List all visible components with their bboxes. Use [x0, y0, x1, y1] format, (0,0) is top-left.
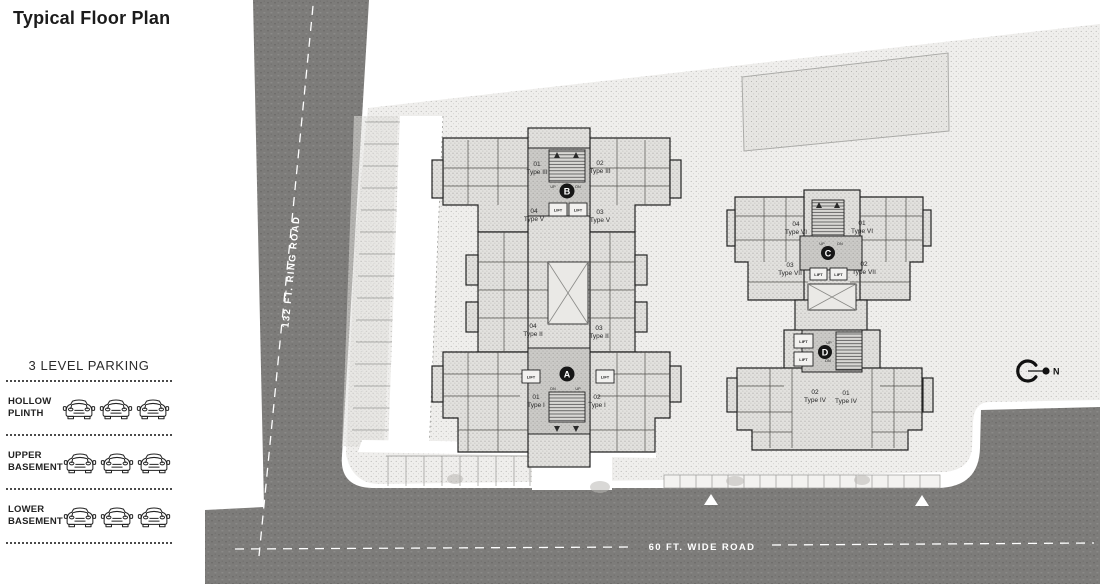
svg-text:Type I: Type I — [588, 402, 606, 409]
svg-text:Type I: Type I — [527, 402, 545, 409]
svg-text:B: B — [564, 187, 571, 197]
up-label: UP — [550, 185, 556, 189]
car-icons-row — [62, 397, 172, 420]
svg-text:03: 03 — [596, 209, 604, 216]
car-icon — [63, 451, 97, 474]
parking-legend: 3 LEVEL PARKING HOLLOW PLINTH UPPER BASE… — [6, 358, 172, 544]
svg-text:Type II: Type II — [589, 333, 609, 340]
svg-text:D: D — [822, 348, 829, 358]
wide-road-label: 60 FT. WIDE ROAD — [649, 542, 756, 553]
parking-level-upper-basement: UPPER BASEMENT — [6, 436, 172, 488]
svg-text:Type III: Type III — [526, 169, 548, 176]
stair-b — [549, 150, 585, 182]
dn-label: DN — [837, 242, 843, 246]
svg-text:Type IV: Type IV — [804, 397, 827, 404]
dn-label: DN — [575, 185, 581, 189]
parking-level-label: UPPER BASEMENT — [8, 450, 63, 475]
parking-level-lower-basement: LOWER BASEMENT — [6, 490, 172, 542]
core-badge-b: B — [560, 184, 575, 199]
southeast-parking-stalls — [664, 475, 940, 488]
lift-label: LIFT — [799, 357, 808, 362]
car-icon — [136, 397, 170, 420]
parking-level-label: HOLLOW PLINTH — [8, 396, 62, 421]
svg-text:Type VI: Type VI — [785, 229, 807, 236]
svg-text:02: 02 — [596, 160, 604, 167]
stair-d — [836, 332, 862, 370]
svg-text:04: 04 — [792, 221, 800, 228]
core-badge-a: A — [560, 367, 575, 382]
car-icon — [137, 451, 171, 474]
lift-label: LIFT — [814, 272, 823, 277]
svg-text:04: 04 — [530, 208, 538, 215]
svg-text:01: 01 — [532, 394, 540, 401]
floor-plan-page: LIFT LIFT LIFT LIFT UP DN DN UP B A — [0, 0, 1100, 584]
lift-label: LIFT — [554, 208, 563, 213]
car-icon — [100, 451, 134, 474]
lift-label: LIFT — [527, 375, 536, 380]
svg-text:02: 02 — [860, 261, 868, 268]
car-icons-row — [63, 505, 173, 528]
stair-c — [812, 200, 844, 236]
parking-level-label: LOWER BASEMENT — [8, 504, 63, 529]
svg-text:Type VII: Type VII — [852, 269, 876, 276]
core-badge-d: D — [818, 345, 832, 359]
svg-text:01: 01 — [858, 220, 866, 227]
svg-text:C: C — [825, 249, 832, 259]
svg-text:Type II: Type II — [523, 331, 543, 338]
svg-text:01: 01 — [533, 161, 541, 168]
svg-text:03: 03 — [786, 262, 794, 269]
lift-label: LIFT — [799, 339, 808, 344]
north-label: N — [1053, 367, 1060, 377]
car-icons-row — [63, 451, 173, 474]
svg-text:Type V: Type V — [590, 217, 611, 224]
svg-text:02: 02 — [593, 394, 601, 401]
lift-label: LIFT — [834, 272, 843, 277]
svg-text:A: A — [564, 370, 571, 380]
legend-divider — [6, 542, 172, 544]
page-title: Typical Floor Plan — [13, 8, 170, 29]
svg-text:03: 03 — [595, 325, 603, 332]
svg-text:01: 01 — [842, 390, 850, 397]
svg-text:Type VII: Type VII — [778, 270, 802, 277]
core-badge-c: C — [821, 246, 835, 260]
up-label: UP — [826, 341, 832, 345]
svg-text:02: 02 — [811, 389, 819, 396]
stair-a — [549, 392, 585, 422]
lift-label: LIFT — [574, 208, 583, 213]
parking-level-hollow-plinth: HOLLOW PLINTH — [6, 382, 172, 434]
lift-label: LIFT — [601, 375, 610, 380]
dn-label: DN — [825, 359, 831, 363]
parking-legend-heading: 3 LEVEL PARKING — [6, 358, 172, 373]
svg-text:Type IV: Type IV — [835, 398, 858, 405]
up-label: UP — [819, 242, 825, 246]
car-icon — [137, 505, 171, 528]
dn-label: DN — [550, 387, 556, 391]
svg-text:04: 04 — [529, 323, 537, 330]
car-icon — [62, 397, 96, 420]
svg-text:Type V: Type V — [524, 216, 545, 223]
car-icon — [99, 397, 133, 420]
car-icon — [63, 505, 97, 528]
svg-text:Type VI: Type VI — [851, 228, 873, 235]
car-icon — [100, 505, 134, 528]
up-label: UP — [575, 387, 581, 391]
svg-text:Type III: Type III — [589, 168, 611, 175]
